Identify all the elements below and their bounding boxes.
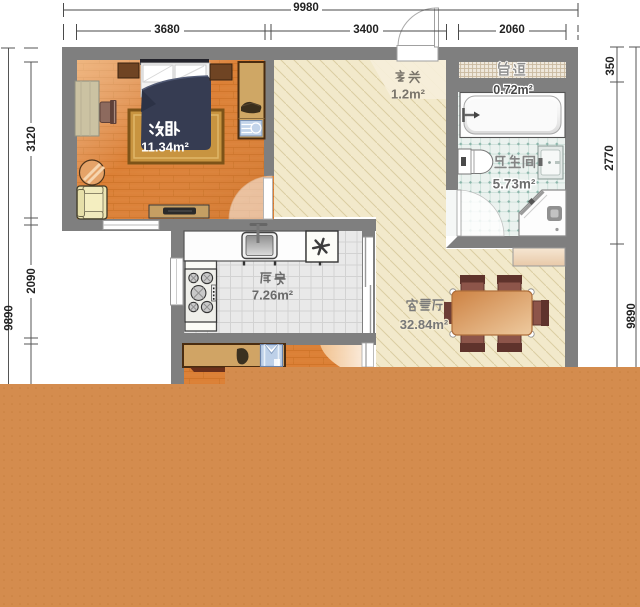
svg-text:3680: 3680: [154, 24, 180, 36]
svg-text:2060: 2060: [499, 24, 525, 36]
svg-text:2090: 2090: [26, 268, 38, 294]
svg-text:350: 350: [605, 56, 617, 75]
svg-text:0.72m²: 0.72m²: [493, 83, 533, 97]
svg-text:32.84m²: 32.84m²: [400, 317, 449, 332]
svg-text:11.34m²: 11.34m²: [141, 140, 189, 155]
svg-text:3120: 3120: [26, 126, 38, 152]
svg-text:5.73m²: 5.73m²: [493, 177, 536, 192]
svg-text:9980: 9980: [293, 2, 319, 14]
svg-text:1.2m²: 1.2m²: [391, 87, 426, 102]
svg-text:3400: 3400: [353, 24, 379, 36]
svg-text:9890: 9890: [626, 303, 638, 329]
svg-text:7.26m²: 7.26m²: [252, 288, 294, 303]
svg-text:9890: 9890: [4, 305, 16, 331]
svg-text:2770: 2770: [604, 145, 616, 171]
